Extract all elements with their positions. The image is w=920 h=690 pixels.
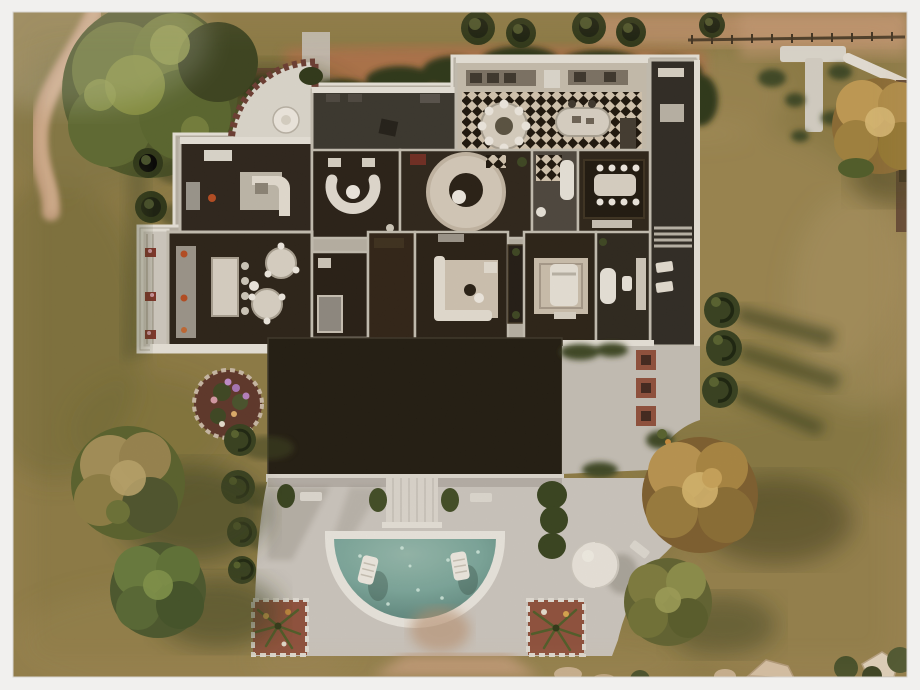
lot-aerial-photo <box>0 0 920 690</box>
film-grain <box>13 12 907 677</box>
screenshot-stage: Top-down aerial screenshot of a mansion … <box>0 0 920 690</box>
